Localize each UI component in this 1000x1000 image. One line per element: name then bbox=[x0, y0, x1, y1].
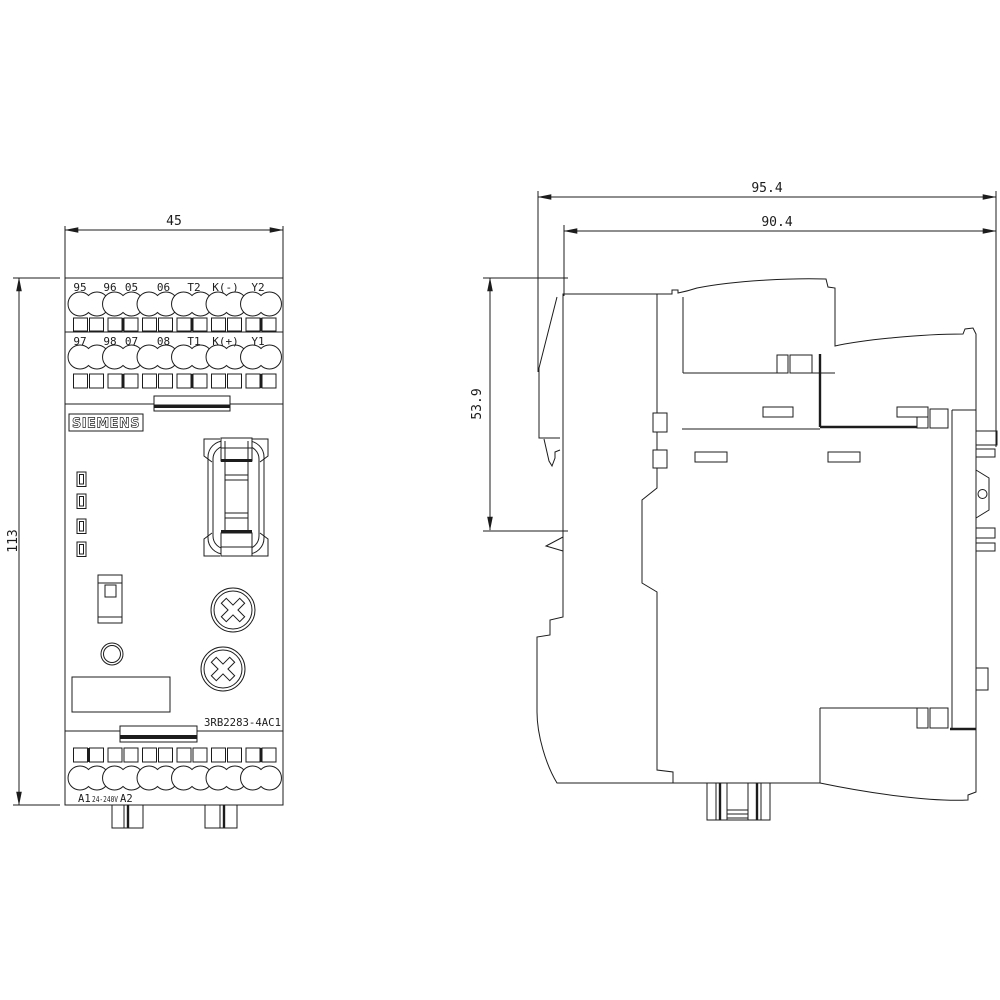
dimension-front-height: 113 bbox=[6, 278, 60, 805]
marking-strip-bottom bbox=[120, 726, 197, 742]
rail-guide-clip bbox=[546, 537, 563, 551]
din-rail-latch bbox=[544, 439, 560, 466]
side-internal-lines bbox=[642, 294, 976, 783]
screw-slot bbox=[193, 374, 207, 388]
screw-slot bbox=[108, 748, 122, 762]
dimension-side-body-depth: 90.4 bbox=[564, 215, 996, 296]
dimensional-drawing: 95 96 05 06 T2 K(-) Y2 97 98 07 08 T1 K(… bbox=[0, 0, 1000, 1000]
screw-slot bbox=[212, 318, 226, 331]
dimension-side-upper-depth: 53.9 bbox=[470, 278, 568, 531]
connector-port bbox=[204, 438, 268, 556]
brand-logo: SIEMENS bbox=[69, 414, 143, 432]
screw-slot bbox=[90, 318, 104, 331]
screw-slot bbox=[74, 318, 88, 331]
screw-slot bbox=[246, 318, 260, 331]
terminal-label: 08 bbox=[157, 335, 170, 348]
rating-label-field bbox=[72, 677, 170, 712]
coil-a1-label: A1 bbox=[78, 793, 91, 805]
screw-slot bbox=[74, 374, 88, 388]
screw-slot bbox=[143, 374, 157, 388]
screw-slot bbox=[177, 748, 191, 762]
screw-slot bbox=[108, 374, 122, 388]
screw-slot bbox=[246, 374, 260, 388]
terminal-label: 06 bbox=[157, 281, 170, 294]
screw-slot bbox=[90, 748, 104, 762]
side-view bbox=[537, 279, 997, 820]
side-bottom-plug bbox=[707, 783, 770, 820]
terminal-label: T2 bbox=[187, 281, 200, 294]
screw-slot bbox=[262, 748, 276, 762]
led-indicator-inner bbox=[80, 475, 84, 485]
mounting-foot bbox=[205, 805, 237, 828]
terminal-label: 95 bbox=[73, 281, 86, 294]
screw-slot bbox=[228, 374, 242, 388]
screw-slot bbox=[74, 748, 88, 762]
terminal-opening bbox=[241, 292, 282, 316]
dimension-value: 45 bbox=[166, 214, 182, 229]
terminal-label: 97 bbox=[73, 335, 86, 348]
terminal-label: T1 bbox=[187, 335, 200, 348]
terminal-opening bbox=[241, 766, 282, 790]
screw-slot bbox=[212, 374, 226, 388]
mounting-foot bbox=[112, 805, 143, 828]
vent-slots bbox=[653, 407, 928, 468]
dimension-value: 90.4 bbox=[761, 215, 792, 230]
front-view: 95 96 05 06 T2 K(-) Y2 97 98 07 08 T1 K(… bbox=[65, 278, 283, 828]
screw-slot bbox=[159, 374, 173, 388]
terminal-label: 07 bbox=[125, 335, 138, 348]
terminal-label: 05 bbox=[125, 281, 138, 294]
screw-slot bbox=[177, 374, 191, 388]
din-rail-hook bbox=[539, 297, 563, 551]
screw-slot bbox=[108, 318, 122, 331]
test-slider[interactable] bbox=[98, 575, 122, 623]
terminal-label: K(+) bbox=[212, 335, 239, 348]
din-rail-clamp bbox=[976, 431, 997, 690]
screw-slot bbox=[228, 318, 242, 331]
terminal-opening bbox=[241, 345, 282, 369]
coil-voltage-label: 24-240V bbox=[92, 795, 118, 804]
led-indicator-inner bbox=[80, 522, 84, 532]
terminal-label: Y1 bbox=[251, 335, 264, 348]
screw-slot bbox=[90, 374, 104, 388]
coil-a2-label: A2 bbox=[120, 793, 133, 805]
screw-slot bbox=[159, 748, 173, 762]
led-indicator-inner bbox=[80, 497, 84, 507]
screw-slot bbox=[143, 318, 157, 331]
screw-slot bbox=[124, 374, 138, 388]
led-indicator-inner bbox=[80, 545, 84, 555]
screw-icon[interactable] bbox=[201, 647, 245, 691]
screw-slot bbox=[246, 748, 260, 762]
terminal-label: K(-) bbox=[212, 281, 239, 294]
coil-terminal-marking: A1 24-240V A2 bbox=[78, 793, 133, 805]
side-body-outline bbox=[537, 279, 976, 801]
dimension-value: 53.9 bbox=[470, 388, 485, 419]
screw-slot bbox=[177, 318, 191, 331]
screw-slot bbox=[143, 748, 157, 762]
product-code: 3RB2283-4AC1 bbox=[204, 716, 281, 729]
screw-slot bbox=[262, 374, 276, 388]
screw-slot bbox=[193, 318, 207, 331]
reset-button[interactable] bbox=[101, 643, 123, 665]
screw-slot bbox=[124, 318, 138, 331]
screw-slot bbox=[124, 748, 138, 762]
screw-slot bbox=[193, 748, 207, 762]
screw-slot bbox=[228, 748, 242, 762]
terminal-label: 98 bbox=[103, 335, 116, 348]
terminal-label: Y2 bbox=[251, 281, 264, 294]
screw-slot bbox=[159, 318, 173, 331]
terminal-label: 96 bbox=[103, 281, 116, 294]
screw-slot bbox=[262, 318, 276, 331]
dimension-value: 95.4 bbox=[751, 181, 782, 196]
terminal-labels-row1: 95 96 05 06 T2 K(-) Y2 bbox=[73, 281, 264, 294]
dimension-annotations: 45 113 95.4 90.4 53.9 bbox=[6, 181, 996, 805]
screw-icon[interactable] bbox=[211, 588, 255, 632]
dimension-front-width: 45 bbox=[65, 214, 283, 278]
dimension-value: 113 bbox=[6, 529, 21, 552]
brand-logo-text: SIEMENS bbox=[72, 416, 140, 432]
marking-strip-top bbox=[154, 396, 230, 411]
screw-slot bbox=[212, 748, 226, 762]
